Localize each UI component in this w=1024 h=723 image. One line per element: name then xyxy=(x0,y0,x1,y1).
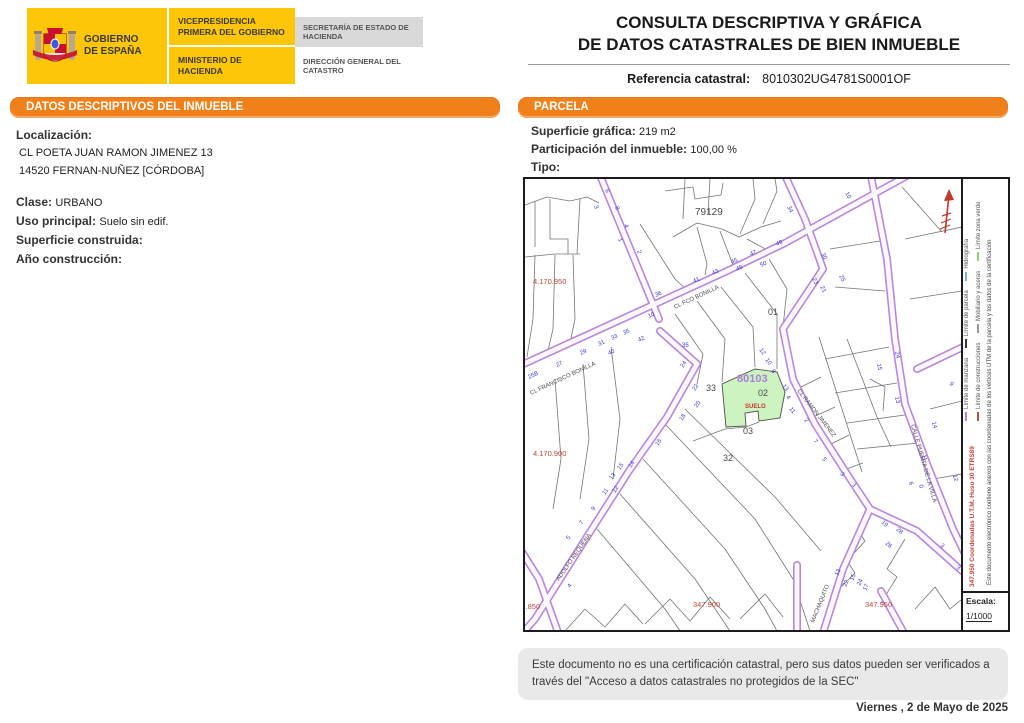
block-label-79129: 79129 xyxy=(695,207,723,218)
house-number: 35 xyxy=(682,343,689,349)
parcel-line xyxy=(577,199,580,254)
house-number: 7 xyxy=(811,439,818,446)
parcel-line xyxy=(740,179,755,234)
tipo-label: Tipo: xyxy=(531,160,560,174)
manzana-dash-icon xyxy=(965,412,967,421)
parcel-line xyxy=(870,379,885,411)
legend-row-1: Límite de manzana Límite de parcela Hidr… xyxy=(964,239,970,429)
street-core-north-branch xyxy=(599,179,659,319)
address-line2: 14520 FERNAN-NUÑEZ [CÓRDOBA] xyxy=(16,162,213,180)
house-number: 22 xyxy=(692,383,701,392)
logo-ministerio-section: VICEPRESIDENCIA PRIMERA DEL GOBIERNO MIN… xyxy=(167,8,295,84)
house-number: 12 xyxy=(757,348,766,357)
parcel-line xyxy=(673,221,781,237)
utm-y-coordinate: 4.170.900 xyxy=(533,449,566,458)
house-number: 27 xyxy=(555,360,564,369)
parcel-line xyxy=(525,254,580,257)
parcel-line xyxy=(763,179,777,224)
map-legend-sidebar: Límite de manzana Límite de parcela Hidr… xyxy=(961,179,1008,630)
scale-label: Escala: xyxy=(966,596,1005,606)
house-number: 5 xyxy=(820,457,827,464)
house-number: 40 xyxy=(607,348,616,357)
subject-parcel-number: 02 xyxy=(758,388,768,398)
house-number: 3 xyxy=(592,205,599,211)
clase-label: Clase: xyxy=(16,195,52,209)
legend-limite-parcela: Límite de parcela xyxy=(964,290,970,336)
section-header-parcela: PARCELA xyxy=(518,97,1008,118)
parcel-line xyxy=(570,255,575,343)
house-number: 11 xyxy=(787,407,796,416)
utm-y-coordinate: 4.170.950 xyxy=(533,277,566,286)
north-arrow-icon xyxy=(940,189,954,233)
superficie-construida-row: Superficie construida: xyxy=(16,231,213,250)
legend-limite-construcciones: Límite de construcciones xyxy=(976,343,982,409)
superficie-construida-label: Superficie construida: xyxy=(16,233,143,247)
parcel-line xyxy=(825,347,889,359)
cadastral-map-figure: 25B2729313335404210364143454748504963841… xyxy=(523,177,1010,632)
clase-value: URBANO xyxy=(55,197,102,209)
parcel-line xyxy=(835,287,885,291)
parcel-line xyxy=(697,301,725,382)
legend-mobiliario-aceras: Mobiliario y aceras xyxy=(976,271,982,321)
participacion-row: Participación del inmueble: 100,00 % xyxy=(531,141,737,159)
logo-secretaria-section: SECRETARÍA DE ESTADO DE HACIENDA DIRECCI… xyxy=(295,8,423,84)
parcel-label-32: 32 xyxy=(723,453,733,463)
house-number: 4 xyxy=(567,582,574,589)
parcel-line xyxy=(547,255,555,355)
house-number: 20 xyxy=(694,400,703,409)
house-number: 7 xyxy=(579,519,586,526)
gobierno-espana-label: GOBIERNO DE ESPAÑA xyxy=(84,34,142,59)
mobiliario-dash-icon xyxy=(977,324,979,333)
certification-note: Este documento electrónico contiene anex… xyxy=(987,239,993,585)
section-header-datos-descriptivos: DATOS DESCRIPTIVOS DEL INMUEBLE xyxy=(10,97,500,118)
house-number: 2 xyxy=(802,418,809,425)
parcel-line xyxy=(525,197,599,205)
cadastral-map: 25B2729313335404210364143454748504963841… xyxy=(525,179,961,630)
subject-parcel-use: SUELO xyxy=(745,404,766,410)
document-title-block: CONSULTA DESCRIPTIVA Y GRÁFICA DE DATOS … xyxy=(528,12,1010,86)
legend-row-2: Límite de construcciones Mobiliario y ac… xyxy=(976,202,982,429)
house-number: 33 xyxy=(610,333,619,342)
hidrografia-dash-icon xyxy=(965,272,967,281)
subject-block-ref: 80103 xyxy=(737,373,768,385)
construcciones-dash-icon xyxy=(977,412,979,421)
superficie-grafica-label: Superficie gráfica: xyxy=(531,124,636,138)
parcel-line xyxy=(740,594,783,619)
house-number: 5 xyxy=(566,534,573,541)
reference-label: Referencia catastral: xyxy=(627,72,750,86)
parcel-line xyxy=(611,347,620,479)
parcel-line xyxy=(580,364,589,499)
address-line1: CL POETA JUAN RAMON JIMENEZ 13 xyxy=(16,144,213,162)
anio-construccion-row: Año construcción: xyxy=(16,250,213,269)
parcel-line xyxy=(553,379,561,509)
house-number: 25B xyxy=(527,371,539,381)
parcel-label-03: 03 xyxy=(743,426,753,436)
house-number: 34 xyxy=(785,205,794,214)
ministerio-label: MINISTERIO DE HACIENDA xyxy=(169,47,295,84)
parcel-line xyxy=(915,587,961,609)
house-number: 24 xyxy=(680,360,689,369)
parcel-line xyxy=(597,529,683,630)
parcel-data: Superficie gráfica: 219 m2 Participación… xyxy=(531,123,737,177)
house-number: 6 xyxy=(907,481,914,486)
cadastral-reference-row: Referencia catastral:8010302UG4781S0001O… xyxy=(528,64,1010,86)
street-core-south-stub-2 xyxy=(881,591,905,630)
house-number: 13 xyxy=(609,472,618,481)
direccion-catastro-label: DIRECCIÓN GENERAL DEL CATASTRO xyxy=(295,51,423,81)
parcel-line xyxy=(620,494,730,630)
house-number: 1 xyxy=(616,238,623,244)
property-descriptive-data: Localización: CL POETA JUAN RAMON JIMENE… xyxy=(16,126,213,269)
document-date: Viernes , 2 de Mayo de 2025 xyxy=(518,702,1008,714)
parcel-label-01: 01 xyxy=(768,307,778,317)
utm-x-coordinate: 347.950 xyxy=(865,600,892,609)
house-number: 12 xyxy=(951,474,958,482)
street-core-east-stub xyxy=(917,346,961,369)
legend-limite-manzana: Límite de manzana xyxy=(964,358,970,409)
house-number: 29 xyxy=(579,348,588,357)
house-number: 4 xyxy=(784,395,791,402)
utm-coordinates-note: 347.950 Coordenadas U.T.M. Huso 30 ETRS8… xyxy=(969,446,976,587)
parcel-label-33: 33 xyxy=(706,383,716,393)
parcel-line xyxy=(819,337,862,472)
parcel-line xyxy=(905,227,961,239)
house-number: 21 xyxy=(818,285,827,294)
uso-label: Uso principal: xyxy=(16,214,96,228)
street-name: ADOLFO REQUENA xyxy=(556,533,593,582)
house-number: 15 xyxy=(849,573,858,582)
zona-verde-dash-icon xyxy=(977,252,979,261)
house-number: 10 xyxy=(843,191,852,200)
parcel-line xyxy=(902,187,942,232)
disclaimer-box: Este documento no es una certificación c… xyxy=(518,648,1008,700)
superficie-grafica-row: Superficie gráfica: 219 m2 xyxy=(531,123,737,141)
house-number: 31 xyxy=(597,339,606,348)
localizacion-label: Localización: xyxy=(16,126,213,144)
street-name: CALLE PUERTA DE LA VILLA xyxy=(909,424,937,503)
reference-value: 8010302UG4781S0001OF xyxy=(762,72,911,86)
logo-gobierno-section: GOBIERNO DE ESPAÑA xyxy=(27,8,167,84)
house-number: 10 xyxy=(763,358,772,367)
document-title-line1: CONSULTA DESCRIPTIVA Y GRÁFICA xyxy=(528,12,1010,34)
utm-x-coordinate: 347.900 xyxy=(693,600,720,609)
parcel-line xyxy=(697,227,707,275)
utm-x-coordinate: 347.850 xyxy=(525,602,540,611)
government-logo: GOBIERNO DE ESPAÑA VICEPRESIDENCIA PRIME… xyxy=(27,8,423,84)
uso-row: Uso principal: Suelo sin edif. xyxy=(16,212,213,231)
tipo-row: Tipo: xyxy=(531,159,737,177)
house-number: 9 xyxy=(591,505,598,512)
parcel-line xyxy=(665,424,810,630)
document-title-line2: DE DATOS CATASTRALES DE BIEN INMUEBLE xyxy=(528,34,1010,56)
house-number: 35 xyxy=(622,328,631,337)
spain-coat-of-arms-icon xyxy=(32,20,78,72)
house-number: 0 xyxy=(917,484,924,489)
parcel-line xyxy=(857,443,919,449)
anio-construccion-label: Año construcción: xyxy=(16,252,122,266)
parcel-line xyxy=(665,183,723,199)
parcel-line xyxy=(835,383,897,393)
secretaria-label: SECRETARÍA DE ESTADO DE HACIENDA xyxy=(295,17,423,47)
parcel-line xyxy=(721,287,755,367)
clase-row: Clase: URBANO xyxy=(16,193,213,212)
house-number: 9 xyxy=(948,381,955,388)
street-name: CL FRANCISCO BONILLA xyxy=(529,361,596,397)
parcel-line xyxy=(683,179,685,219)
house-number: 42 xyxy=(637,335,646,344)
parcel-line xyxy=(910,291,961,299)
house-number: 2 xyxy=(635,250,642,256)
scale-box: Escala: 1/1000 xyxy=(963,591,1008,630)
house-number: 15 xyxy=(617,462,626,471)
legend-limite-zona-verde: Límite zona verde xyxy=(976,202,982,250)
parcela-dash-icon xyxy=(965,339,967,348)
house-number: 50 xyxy=(759,260,768,269)
vicepresidencia-label: VICEPRESIDENCIA PRIMERA DEL GOBIERNO xyxy=(169,8,295,47)
parcel-line xyxy=(930,401,961,409)
participacion-label: Participación del inmueble: xyxy=(531,142,687,156)
house-number: 18 xyxy=(679,413,688,422)
uso-value: Suelo sin edif. xyxy=(99,216,168,228)
cadastral-document-page: GOBIERNO DE ESPAÑA VICEPRESIDENCIA PRIME… xyxy=(0,0,1024,723)
house-number: 26 xyxy=(884,541,893,550)
superficie-grafica-value: 219 m2 xyxy=(639,126,676,138)
parcel-line xyxy=(847,415,905,423)
parcel-line xyxy=(550,199,568,254)
house-number: 25 xyxy=(837,274,846,283)
house-number: 15 xyxy=(875,363,882,371)
house-number: 14 xyxy=(930,421,937,429)
house-number: 17 xyxy=(862,583,871,592)
legend-hidrografia: Hidrografía xyxy=(964,239,970,269)
scale-value: 1/1000 xyxy=(966,611,992,622)
parcel-line xyxy=(565,604,643,630)
participacion-value: 100,00 % xyxy=(690,144,736,156)
parcel-line xyxy=(527,255,535,357)
parcel-line xyxy=(830,241,880,249)
house-number: 13 xyxy=(893,396,900,404)
